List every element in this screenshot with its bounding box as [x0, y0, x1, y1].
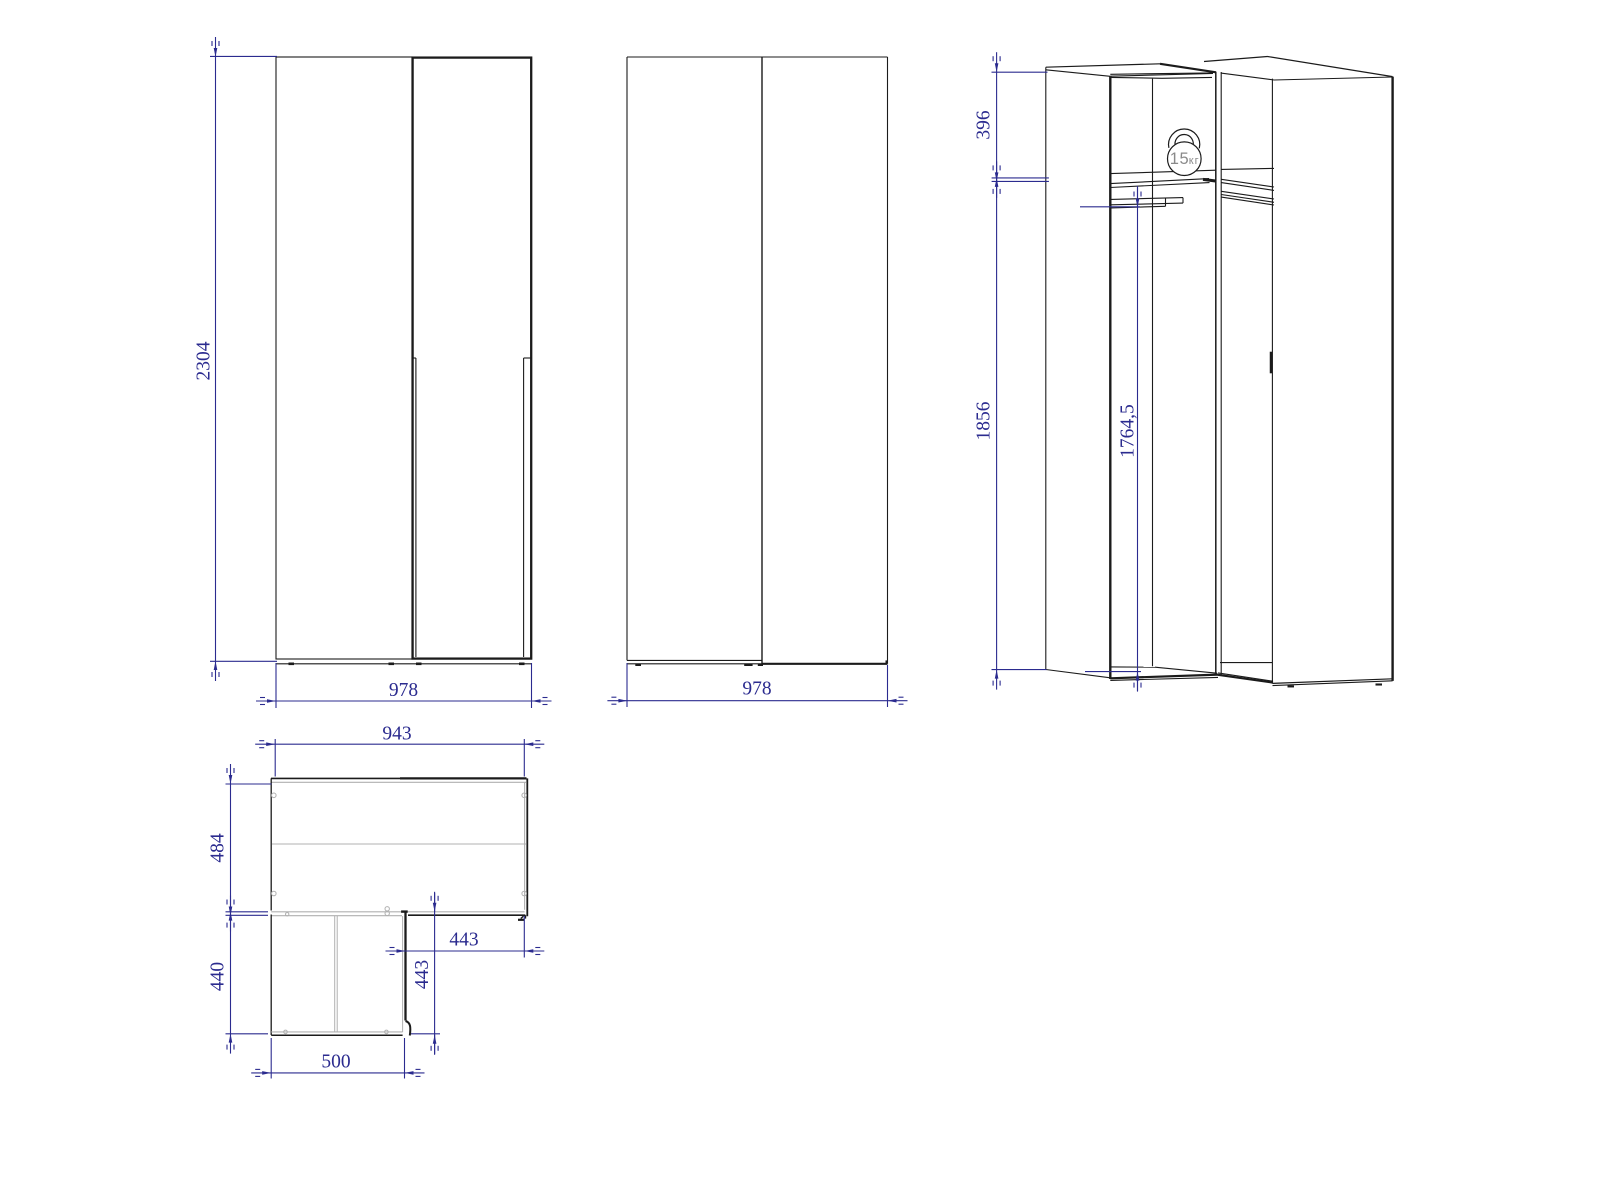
svg-text:484: 484 — [208, 833, 229, 863]
svg-text:943: 943 — [382, 724, 411, 745]
svg-text:1856: 1856 — [974, 401, 995, 440]
svg-text:15: 15 — [1170, 150, 1189, 168]
svg-text:443: 443 — [449, 930, 478, 951]
svg-text:2304: 2304 — [194, 341, 215, 380]
svg-text:кг: кг — [1189, 155, 1200, 167]
svg-text:440: 440 — [208, 962, 229, 991]
svg-text:1764,5: 1764,5 — [1118, 404, 1139, 458]
svg-text:396: 396 — [974, 110, 995, 140]
svg-text:978: 978 — [389, 680, 418, 701]
svg-text:500: 500 — [321, 1052, 350, 1073]
svg-text:443: 443 — [412, 960, 433, 989]
svg-text:978: 978 — [742, 679, 771, 700]
